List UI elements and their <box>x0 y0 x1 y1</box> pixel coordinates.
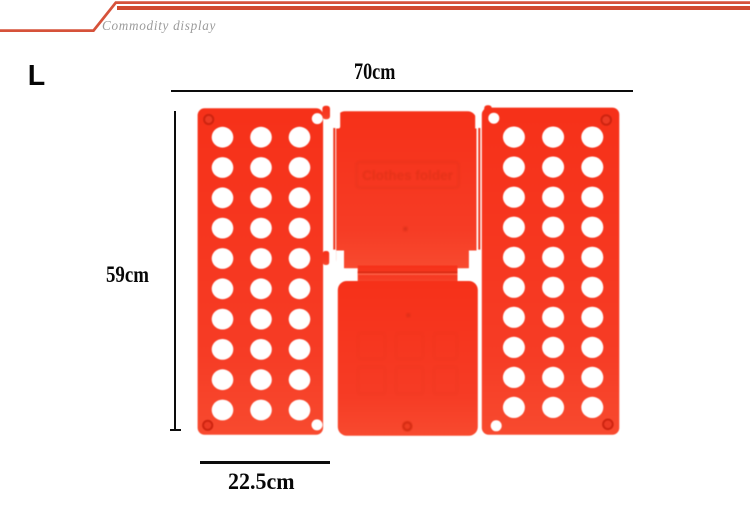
svg-text:Clothes folder: Clothes folder <box>362 168 454 183</box>
